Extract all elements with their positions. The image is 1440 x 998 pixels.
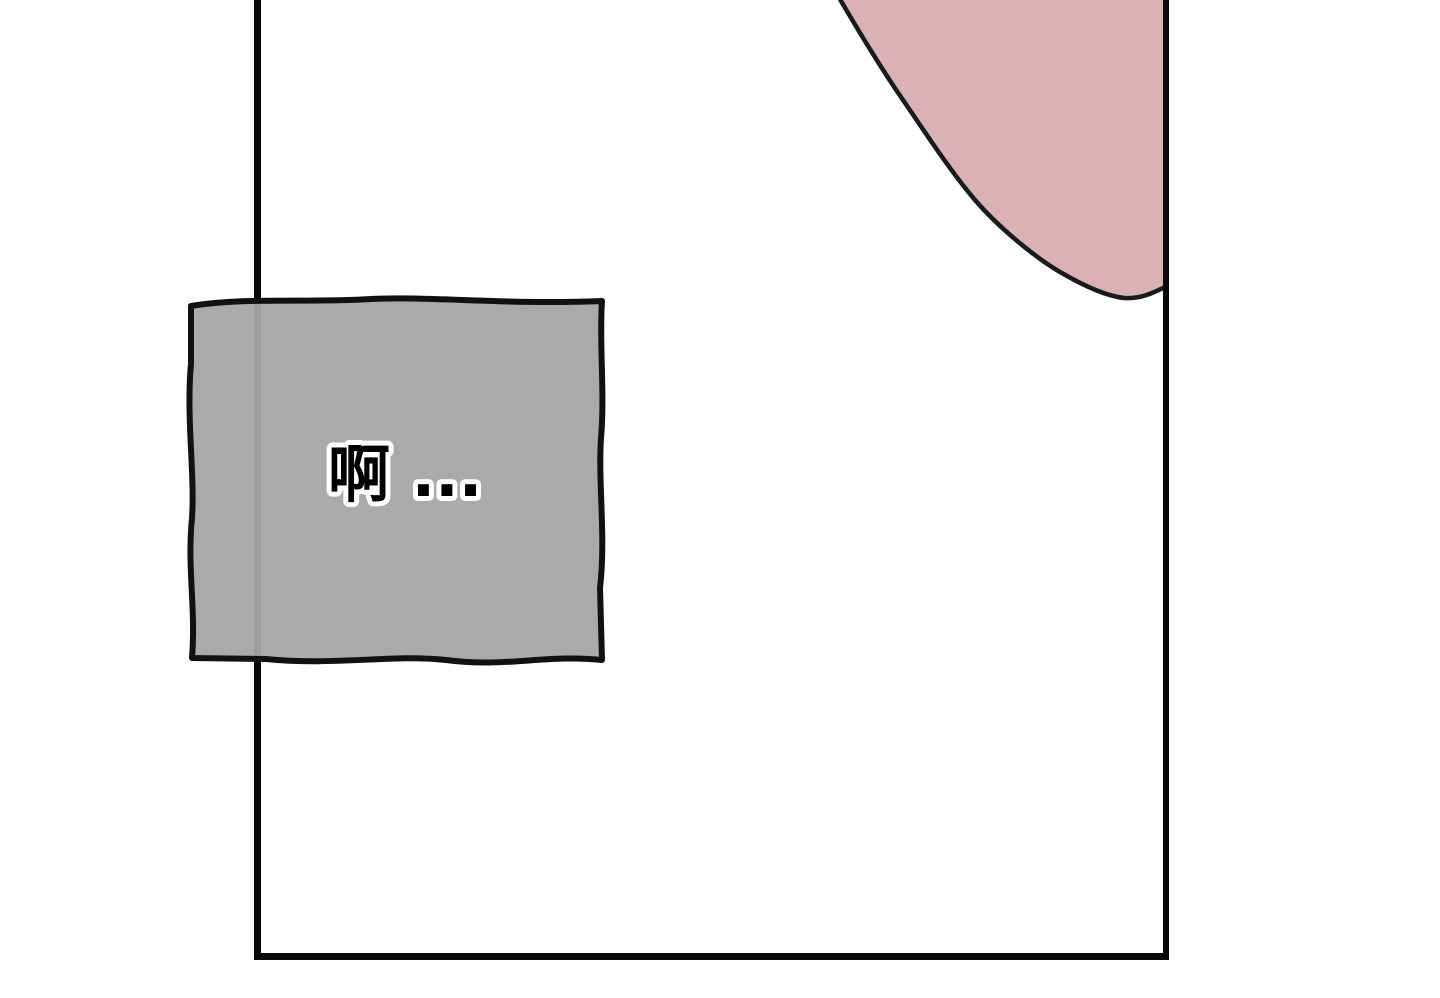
speech-box: 啊 ... xyxy=(176,288,620,678)
skin-shape xyxy=(837,0,1163,298)
skin-shape-figure xyxy=(561,0,1163,330)
comic-page: 啊 ... xyxy=(0,0,1440,998)
speech-text: 啊 ... xyxy=(328,438,482,511)
